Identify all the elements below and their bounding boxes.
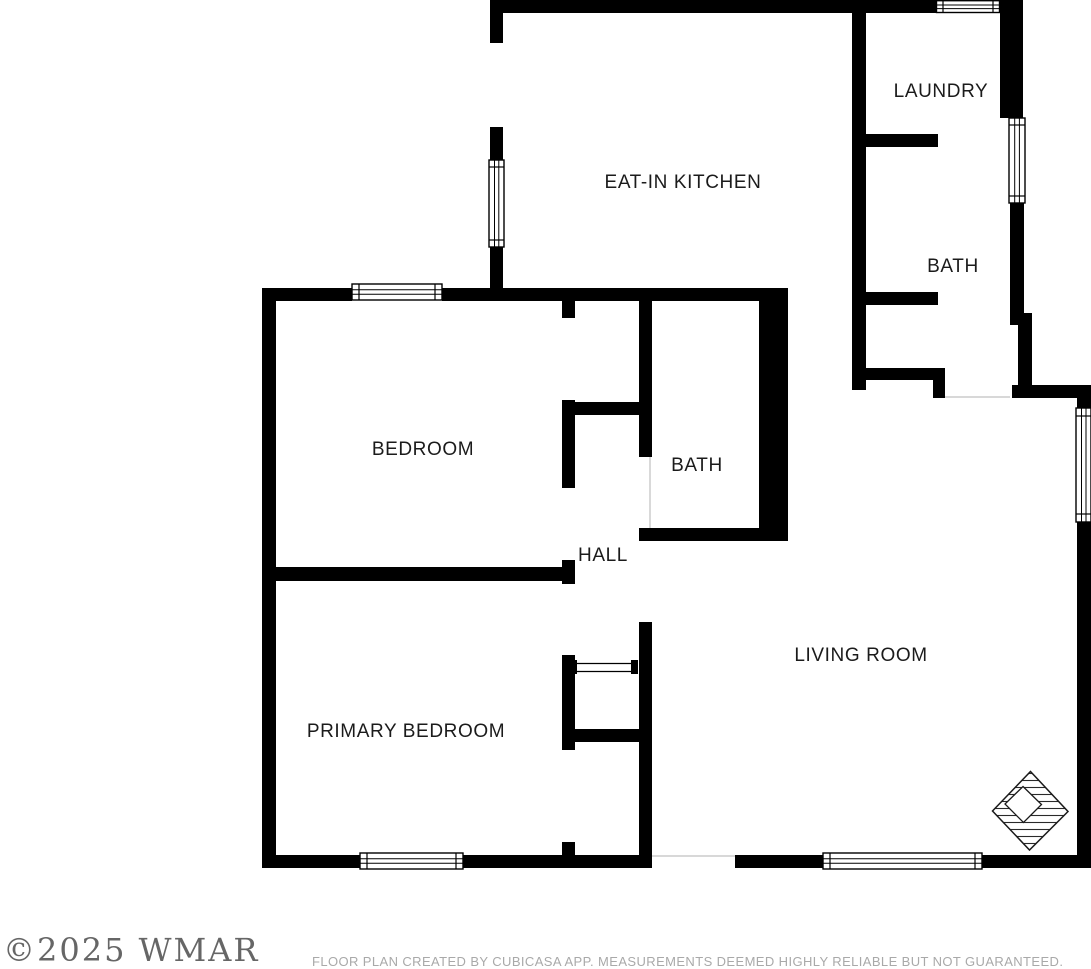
wall [562, 560, 575, 584]
window [1009, 118, 1025, 203]
wall [442, 288, 788, 301]
window [823, 853, 982, 869]
wall [490, 127, 503, 160]
compass-icon [993, 772, 1069, 851]
wall [262, 288, 352, 301]
wall [490, 0, 940, 13]
wall [562, 402, 652, 415]
wall [866, 134, 938, 147]
wall [562, 301, 575, 318]
disclaimer-text: FLOOR PLAN CREATED BY CUBICASA APP. MEAS… [312, 954, 1063, 969]
wall [1012, 385, 1091, 398]
wall [262, 855, 360, 868]
window [352, 284, 442, 300]
floor-plan-drawing [0, 0, 1091, 969]
window [489, 160, 504, 247]
room-label-bath-upper: BATH [927, 256, 979, 278]
wall [276, 567, 575, 581]
room-label-hall: HALL [578, 545, 628, 567]
room-label-primary-bedroom: PRIMARY BEDROOM [307, 721, 505, 743]
wall [982, 855, 1091, 868]
wall [1077, 522, 1091, 868]
wall [759, 288, 788, 541]
room-label-bath-center: BATH [671, 455, 723, 477]
wall [933, 380, 945, 398]
wall [1010, 313, 1032, 325]
wall [735, 855, 823, 868]
room-label-laundry: LAUNDRY [894, 81, 989, 103]
wall [490, 0, 503, 43]
wall [852, 13, 866, 390]
room-label-bedroom: BEDROOM [372, 439, 474, 461]
room-label-living-room: LIVING ROOM [794, 645, 927, 667]
wall [1000, 0, 1023, 118]
window [937, 1, 1000, 13]
hall-door [570, 660, 638, 674]
wall [1010, 203, 1024, 313]
window [360, 853, 463, 869]
wall [866, 368, 945, 380]
floor-plan: EAT-IN KITCHEN LAUNDRY BATH BEDROOM BATH… [0, 0, 1091, 969]
room-label-eat-in-kitchen: EAT-IN KITCHEN [605, 172, 762, 194]
wall [639, 301, 652, 457]
window [1076, 408, 1091, 522]
wall [262, 288, 276, 868]
wall [639, 622, 652, 868]
wall [463, 855, 652, 868]
copyright-watermark: ©2025 WMAR [3, 931, 259, 969]
floor-plan-page: { "floor_plan": { "rooms": { "eat_in_kit… [0, 0, 1091, 969]
wall [562, 842, 575, 868]
wall [866, 292, 938, 305]
wall [562, 729, 652, 742]
